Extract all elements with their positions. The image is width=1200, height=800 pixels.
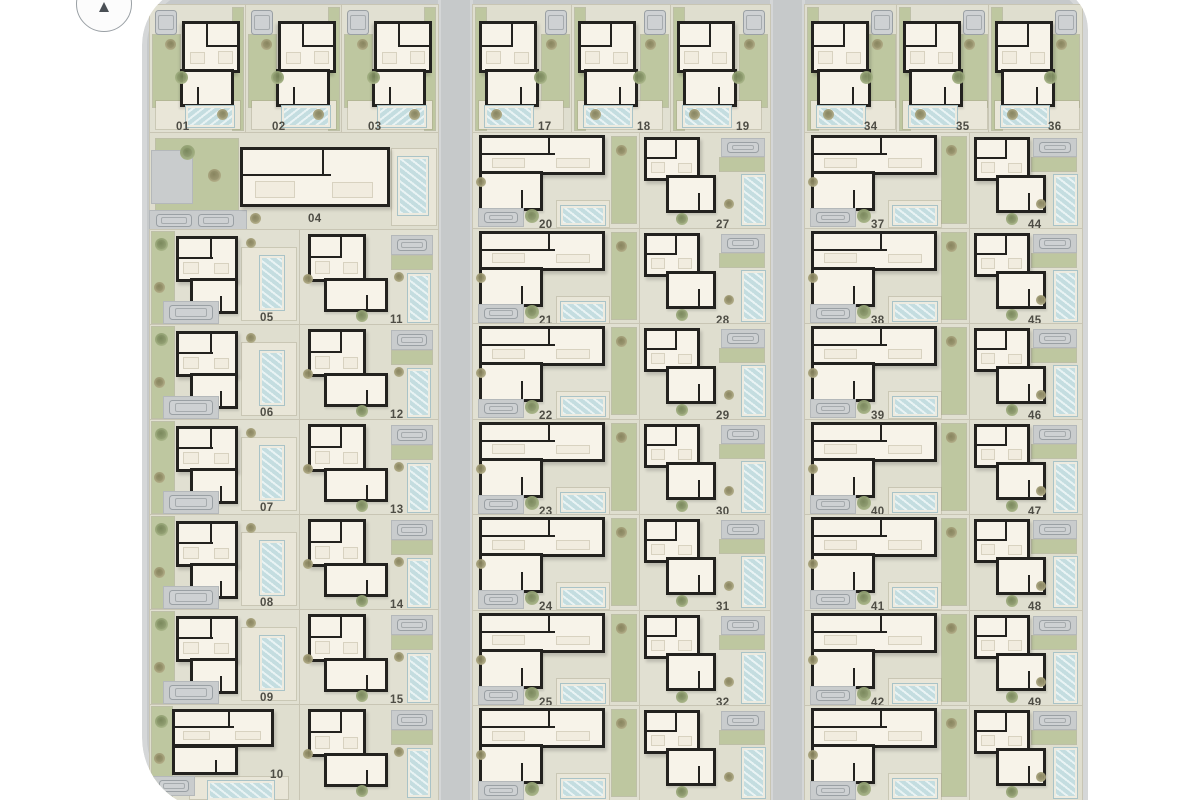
tree-icon xyxy=(676,309,688,321)
garden-area xyxy=(392,256,432,269)
tree-icon xyxy=(946,432,957,443)
parked-car-icon xyxy=(816,212,850,223)
house-wing-footprint xyxy=(372,69,426,107)
garden-area xyxy=(392,446,432,459)
plot-number-label: 07 xyxy=(260,502,274,514)
villa-plot[interactable]: 21 xyxy=(473,229,640,325)
villa-plot[interactable] xyxy=(805,706,970,800)
parked-car-icon xyxy=(397,619,427,631)
house-footprint xyxy=(176,236,238,282)
parked-car-icon xyxy=(743,10,765,35)
parked-car-icon xyxy=(963,10,985,35)
plot-geometry xyxy=(970,611,1082,707)
tree-icon xyxy=(616,145,627,156)
house-footprint xyxy=(811,422,937,462)
garden-area xyxy=(1032,445,1076,458)
villa-plot[interactable]: 12 xyxy=(300,325,438,420)
tree-icon xyxy=(246,618,256,628)
parked-car-icon xyxy=(169,305,213,320)
house-footprint xyxy=(811,613,937,653)
swimming-pool xyxy=(893,493,937,512)
swimming-pool xyxy=(561,684,605,703)
swimming-pool xyxy=(260,541,284,595)
parked-car-icon xyxy=(1039,238,1071,249)
tree-icon xyxy=(724,772,734,782)
furniture-outline xyxy=(343,642,358,654)
tree-icon xyxy=(246,333,256,343)
tree-icon xyxy=(303,559,313,569)
plot-number-label: 36 xyxy=(1048,121,1062,133)
villa-plot[interactable]: 35 xyxy=(897,5,990,133)
driveway-pad xyxy=(1034,139,1076,156)
tree-icon xyxy=(857,209,871,223)
villa-plot[interactable]: 48 xyxy=(970,515,1082,611)
plot-geometry xyxy=(640,706,770,800)
plot-geometry xyxy=(970,515,1082,611)
plot-geometry xyxy=(473,229,640,325)
furniture-outline xyxy=(981,544,995,555)
plot-number-label: 17 xyxy=(538,121,552,133)
tree-icon xyxy=(525,400,539,414)
furniture-outline xyxy=(492,253,526,263)
villa-plot[interactable]: 36 xyxy=(989,5,1082,133)
furniture-outline xyxy=(255,181,295,197)
villa-plot[interactable]: 49 xyxy=(970,611,1082,707)
tree-icon xyxy=(857,591,871,605)
villa-plot[interactable]: 06 xyxy=(150,325,300,420)
plot-geometry xyxy=(150,705,300,800)
tree-icon xyxy=(155,715,168,728)
driveway-pad xyxy=(811,591,855,608)
plot-geometry xyxy=(970,706,1082,800)
villa-plot[interactable]: 24 xyxy=(473,515,640,611)
furniture-outline xyxy=(651,353,665,364)
plot-geometry xyxy=(150,610,300,705)
house-footprint xyxy=(811,708,937,748)
parked-car-icon xyxy=(816,308,850,319)
house-footprint xyxy=(308,234,366,282)
swimming-pool xyxy=(742,748,765,798)
driveway-pad xyxy=(1034,235,1076,252)
furniture-outline xyxy=(678,258,692,269)
villa-plot[interactable] xyxy=(300,705,438,800)
villa-plot[interactable]: 47 xyxy=(970,420,1082,516)
tree-icon xyxy=(823,109,834,120)
tree-icon xyxy=(476,368,486,378)
plot-geometry xyxy=(805,133,970,229)
house-footprint xyxy=(308,614,366,662)
furniture-outline xyxy=(556,349,590,359)
plot-geometry xyxy=(473,5,572,133)
furniture-outline xyxy=(678,354,692,365)
tree-icon xyxy=(1006,404,1018,416)
parked-car-icon xyxy=(727,238,759,249)
furniture-outline xyxy=(183,547,199,559)
villa-plot[interactable]: 04 xyxy=(150,133,438,230)
parked-car-icon xyxy=(169,685,213,700)
parked-car-icon xyxy=(644,10,666,35)
plot-geometry xyxy=(805,611,970,707)
furniture-outline xyxy=(585,51,600,65)
house-wing-footprint xyxy=(180,69,234,107)
furniture-outline xyxy=(678,736,692,747)
house-wing-footprint xyxy=(324,278,388,312)
swimming-pool xyxy=(561,302,605,321)
tree-icon xyxy=(1056,39,1067,50)
house-footprint xyxy=(677,21,735,73)
site-plan: 0102030405060708091011121314151718192021… xyxy=(0,0,1200,800)
plot-geometry xyxy=(473,611,640,707)
villa-plot[interactable]: 09 xyxy=(150,610,300,705)
tree-icon xyxy=(860,71,873,84)
furniture-outline xyxy=(712,52,727,65)
house-footprint xyxy=(479,231,605,271)
villa-plot[interactable]: 07 xyxy=(150,420,300,515)
villa-plot[interactable]: 30 xyxy=(640,420,770,516)
parked-car-icon xyxy=(871,10,893,35)
furniture-outline xyxy=(286,52,301,65)
plot-geometry xyxy=(150,325,300,420)
tree-icon xyxy=(246,523,256,533)
villa-plot[interactable]: 41 xyxy=(805,515,970,611)
tree-icon xyxy=(676,595,688,607)
villa-plot[interactable] xyxy=(473,706,640,800)
parked-car-icon xyxy=(1039,429,1071,440)
house-wing-footprint xyxy=(172,745,238,775)
driveway-pad xyxy=(811,782,855,799)
plot-number-label: 18 xyxy=(637,121,651,133)
parked-car-icon xyxy=(397,429,427,441)
plot-geometry xyxy=(970,133,1082,229)
driveway-pad xyxy=(811,687,855,704)
furniture-outline xyxy=(556,254,590,264)
garden-area xyxy=(392,541,432,554)
house-wing-footprint xyxy=(666,462,716,500)
plot-geometry xyxy=(989,5,1082,133)
furniture-outline xyxy=(315,736,330,749)
parked-car-icon xyxy=(816,785,850,796)
tree-icon xyxy=(1036,390,1046,400)
plot-geometry xyxy=(640,515,770,611)
parked-car-icon xyxy=(198,214,234,227)
parked-car-icon xyxy=(484,499,518,510)
tree-icon xyxy=(946,241,957,252)
tree-icon xyxy=(1036,772,1046,782)
villa-plot[interactable]: 40 xyxy=(805,420,970,516)
tree-icon xyxy=(1036,486,1046,496)
parked-car-icon xyxy=(727,524,759,535)
house-footprint xyxy=(479,517,605,557)
house-wing-footprint xyxy=(324,468,388,502)
furniture-outline xyxy=(1008,258,1022,269)
swimming-pool xyxy=(1054,462,1077,512)
driveway-pad xyxy=(722,426,764,443)
plot-geometry xyxy=(572,5,671,133)
furniture-outline xyxy=(651,735,665,746)
house-footprint xyxy=(176,331,238,377)
tree-icon xyxy=(154,753,165,764)
furniture-outline xyxy=(1008,545,1022,556)
plot-geometry xyxy=(640,611,770,707)
tree-icon xyxy=(676,500,688,512)
tree-icon xyxy=(476,655,486,665)
villa-plot[interactable]: 28 xyxy=(640,229,770,325)
tree-icon xyxy=(271,71,284,84)
garden-area xyxy=(720,158,764,171)
driveway-pad xyxy=(722,235,764,252)
furniture-outline xyxy=(514,52,529,65)
driveway-pad xyxy=(164,682,218,703)
tree-icon xyxy=(165,39,176,50)
house-footprint xyxy=(811,231,937,271)
furniture-outline xyxy=(888,158,922,168)
tree-icon xyxy=(616,623,627,634)
villa-plot[interactable]: 19 xyxy=(671,5,770,133)
tree-icon xyxy=(1006,691,1018,703)
tree-icon xyxy=(394,557,404,567)
tree-icon xyxy=(946,623,957,634)
furniture-outline xyxy=(1008,640,1022,651)
tree-icon xyxy=(946,336,957,347)
swimming-pool xyxy=(408,654,430,702)
plot-geometry xyxy=(342,5,438,133)
swimming-pool xyxy=(408,749,430,797)
swimming-pool xyxy=(1054,748,1077,798)
swimming-pool xyxy=(561,206,605,225)
furniture-outline xyxy=(1008,163,1022,174)
house-footprint xyxy=(308,329,366,377)
house-footprint xyxy=(176,426,238,472)
villa-plot[interactable]: 42 xyxy=(805,611,970,707)
tree-icon xyxy=(724,199,734,209)
villa-plot[interactable]: 02 xyxy=(246,5,342,133)
villa-plot[interactable]: 13 xyxy=(300,420,438,515)
driveway-pad xyxy=(722,617,764,634)
swimming-pool xyxy=(561,779,605,798)
villa-plot[interactable]: 29 xyxy=(640,324,770,420)
tree-icon xyxy=(476,273,486,283)
garden-area xyxy=(720,540,764,553)
tree-icon xyxy=(857,496,871,510)
tree-icon xyxy=(476,177,486,187)
plot-geometry xyxy=(897,5,990,133)
furniture-outline xyxy=(218,51,233,65)
villa-plot[interactable]: 31 xyxy=(640,515,770,611)
furniture-outline xyxy=(343,452,358,464)
villa-plot[interactable]: 32 xyxy=(640,611,770,707)
plot-geometry xyxy=(300,610,438,705)
villa-plot[interactable]: 14 xyxy=(300,515,438,610)
plot-geometry xyxy=(805,706,970,800)
furniture-outline xyxy=(343,262,358,274)
tree-icon xyxy=(676,691,688,703)
plot-number-label: 06 xyxy=(260,407,274,419)
driveway-pad xyxy=(811,400,855,417)
house-footprint xyxy=(176,521,238,567)
tree-icon xyxy=(732,71,745,84)
villa-plot[interactable]: 37 xyxy=(805,133,970,229)
tree-icon xyxy=(250,213,261,224)
villa-plot[interactable]: 20 xyxy=(473,133,640,229)
furniture-outline xyxy=(214,643,230,654)
plot-geometry xyxy=(805,515,970,611)
tree-icon xyxy=(303,749,313,759)
site-plan-page: 0102030405060708091011121314151718192021… xyxy=(0,0,1200,800)
furniture-outline xyxy=(678,449,692,460)
villa-plot[interactable]: 27 xyxy=(640,133,770,229)
villa-plot[interactable]: 39 xyxy=(805,324,970,420)
tree-icon xyxy=(676,404,688,416)
villa-plot[interactable]: 22 xyxy=(473,324,640,420)
swimming-pool xyxy=(893,302,937,321)
tree-icon xyxy=(1006,595,1018,607)
parked-car-icon xyxy=(169,495,213,510)
street-vertical-east xyxy=(770,0,805,800)
swimming-pool xyxy=(408,274,430,322)
tree-icon xyxy=(1036,677,1046,687)
furniture-outline xyxy=(651,640,665,651)
swimming-pool xyxy=(1054,557,1077,607)
villa-plot[interactable]: 15 xyxy=(300,610,438,705)
furniture-outline xyxy=(556,636,590,646)
tree-icon xyxy=(491,109,502,120)
tree-icon xyxy=(1006,500,1018,512)
villa-plot[interactable] xyxy=(640,706,770,800)
house-wing-footprint xyxy=(479,458,543,498)
garden-area xyxy=(720,731,764,744)
furniture-outline xyxy=(888,254,922,264)
driveway-pad xyxy=(722,521,764,538)
furniture-outline xyxy=(214,548,230,559)
furniture-outline xyxy=(183,642,199,654)
furniture-outline xyxy=(492,731,526,741)
furniture-outline xyxy=(492,635,526,645)
tree-icon xyxy=(155,238,168,251)
house-footprint xyxy=(811,135,937,175)
villa-plot[interactable]: 23 xyxy=(473,420,640,516)
house-footprint xyxy=(308,424,366,472)
tree-icon xyxy=(208,169,221,182)
driveway-pad xyxy=(1034,330,1076,347)
furniture-outline xyxy=(678,163,692,174)
furniture-outline xyxy=(235,731,262,740)
house-wing-footprint xyxy=(479,744,543,784)
villa-plot[interactable]: 03 xyxy=(342,5,438,133)
tree-icon xyxy=(1006,786,1018,798)
furniture-outline xyxy=(343,737,358,749)
plot-geometry xyxy=(300,325,438,420)
parked-car-icon xyxy=(156,214,192,227)
swimming-pool xyxy=(260,351,284,405)
tree-icon xyxy=(357,39,368,50)
villa-plot[interactable]: 17 xyxy=(473,5,572,133)
villa-plot[interactable]: 38 xyxy=(805,229,970,325)
house-footprint xyxy=(479,135,605,175)
furniture-outline xyxy=(888,731,922,741)
furniture-outline xyxy=(492,444,526,454)
driveway-pad xyxy=(722,712,764,729)
swimming-pool xyxy=(398,157,428,215)
house-wing-footprint xyxy=(811,267,875,307)
tree-icon xyxy=(155,523,168,536)
plot-number-label: 08 xyxy=(260,597,274,609)
plot-geometry xyxy=(150,420,300,515)
tree-icon xyxy=(724,486,734,496)
parked-car-icon xyxy=(159,780,189,792)
plot-geometry xyxy=(150,5,246,133)
house-footprint xyxy=(811,326,937,366)
swimming-pool xyxy=(208,781,274,800)
parked-car-icon xyxy=(251,10,273,35)
furniture-outline xyxy=(190,52,205,65)
furniture-outline xyxy=(981,735,995,746)
driveway-pad xyxy=(722,330,764,347)
villa-plot[interactable]: 10 xyxy=(150,705,300,800)
house-footprint xyxy=(995,21,1053,73)
tree-icon xyxy=(303,464,313,474)
villa-plot[interactable]: 11 xyxy=(300,230,438,325)
plot-number-label: 19 xyxy=(736,121,750,133)
furniture-outline xyxy=(410,51,425,65)
villa-plot[interactable]: 01 xyxy=(150,5,246,133)
furniture-outline xyxy=(651,162,665,173)
house-wing-footprint xyxy=(811,553,875,593)
parked-car-icon xyxy=(727,142,759,153)
furniture-outline xyxy=(315,356,330,369)
tree-icon xyxy=(476,750,486,760)
villa-plot[interactable] xyxy=(970,706,1082,800)
swimming-pool xyxy=(893,684,937,703)
garden-area xyxy=(720,254,764,267)
furniture-outline xyxy=(315,641,330,654)
tree-icon xyxy=(616,718,627,729)
furniture-outline xyxy=(1008,354,1022,365)
furniture-outline xyxy=(1008,736,1022,747)
plot-geometry xyxy=(150,133,438,230)
furniture-outline xyxy=(651,258,665,269)
swimming-pool xyxy=(742,462,765,512)
garden-area xyxy=(1032,731,1076,744)
plot-geometry xyxy=(473,706,640,800)
plot-geometry xyxy=(805,420,970,516)
furniture-outline xyxy=(888,445,922,455)
tree-icon xyxy=(857,782,871,796)
villa-plot[interactable]: 45 xyxy=(970,229,1082,325)
garden-area xyxy=(392,636,432,649)
villa-plot[interactable]: 05 xyxy=(150,230,300,325)
garden-area xyxy=(392,731,432,744)
furniture-outline xyxy=(214,263,230,274)
furniture-outline xyxy=(678,640,692,651)
tree-icon xyxy=(313,109,324,120)
plot-geometry xyxy=(300,515,438,610)
plot-geometry xyxy=(473,420,640,516)
tree-icon xyxy=(1036,581,1046,591)
villa-plot[interactable]: 08 xyxy=(150,515,300,610)
driveway-pad xyxy=(154,777,194,795)
driveway-pad xyxy=(1034,426,1076,443)
villa-plot[interactable]: 44 xyxy=(970,133,1082,229)
villa-plot[interactable]: 34 xyxy=(805,5,898,133)
house-wing-footprint xyxy=(485,69,539,107)
swimming-pool xyxy=(260,636,284,690)
villa-plot[interactable]: 25 xyxy=(473,611,640,707)
villa-plot[interactable]: 46 xyxy=(970,324,1082,420)
tree-icon xyxy=(1036,199,1046,209)
furniture-outline xyxy=(556,540,590,550)
furniture-outline xyxy=(888,349,922,359)
villa-plot[interactable]: 18 xyxy=(572,5,671,133)
